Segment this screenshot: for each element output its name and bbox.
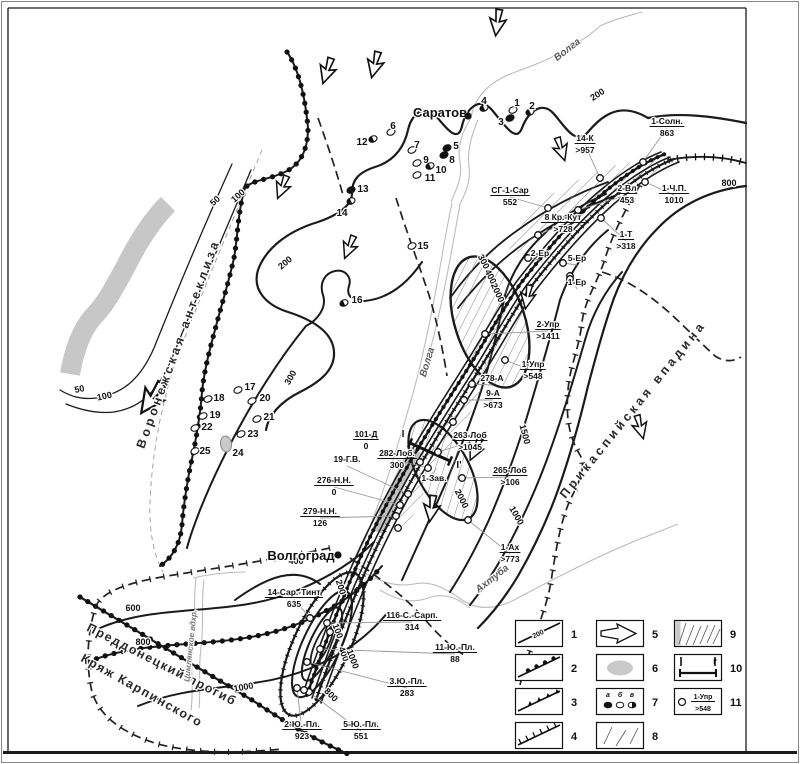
- well-circle: [535, 232, 542, 239]
- legend-number: 11: [730, 697, 742, 709]
- well-value: 300: [390, 460, 404, 470]
- city-name: Саратов: [413, 105, 467, 120]
- well-value: >957: [575, 145, 594, 155]
- point-number: 7: [414, 140, 420, 151]
- well-circle: [397, 502, 404, 509]
- city-name: Волгоград: [267, 548, 335, 563]
- well-name: 14-К: [576, 133, 594, 143]
- well-value: >106: [500, 477, 519, 487]
- well-value: >318: [616, 241, 635, 251]
- legend-number: 8: [652, 731, 658, 743]
- well-name: 279-Н.Н.: [303, 506, 337, 516]
- well-value: >1045: [458, 442, 482, 452]
- well-name: 11-Ю.-Пл.: [435, 642, 475, 652]
- well-circle: [395, 525, 402, 532]
- well-name: 1-Т: [620, 229, 634, 239]
- well-circle: [642, 179, 649, 186]
- well-value: >673: [483, 400, 502, 410]
- well-name: 2-Ю.-Пл.: [284, 719, 319, 729]
- dot-icon: [616, 702, 624, 708]
- well-name: 3.Ю.-Пл.: [390, 676, 425, 686]
- well-circle: [327, 629, 334, 636]
- point-number: 8: [449, 155, 455, 166]
- well-name: 263-Лоб: [453, 430, 486, 440]
- point-number: 21: [263, 412, 275, 423]
- well-name: 2-Упр: [537, 319, 560, 329]
- gray-area-icon: [607, 661, 633, 676]
- point-number: 4: [481, 96, 487, 107]
- well-value: >728: [553, 224, 572, 234]
- well-value: 314: [405, 622, 419, 632]
- well-value: 0: [364, 441, 369, 451]
- dot-type-label: б: [618, 691, 623, 699]
- well-circle: [301, 687, 308, 694]
- well-value: 0: [332, 487, 337, 497]
- well-circle: [597, 175, 604, 182]
- dot-type-label: а: [606, 692, 610, 699]
- section-start-label: I: [402, 429, 405, 440]
- point-number: 19: [209, 410, 221, 421]
- point-number: 14: [336, 208, 348, 219]
- well-circle: [435, 449, 442, 456]
- legend-number: 6: [652, 663, 658, 675]
- city-dot: [334, 551, 341, 558]
- well-circle: [405, 491, 412, 498]
- well-circle: [469, 381, 476, 388]
- well-name: 1-Солн.: [651, 116, 683, 126]
- well-value: 635: [287, 599, 301, 609]
- point-number: 23: [247, 429, 259, 440]
- well-value: 551: [354, 731, 368, 741]
- well-name: 2-Ер: [531, 248, 549, 258]
- well-circle: [598, 215, 605, 222]
- legend-number: 1: [571, 629, 577, 641]
- well-name: 2-Вл: [617, 183, 636, 193]
- well-circle: [294, 685, 301, 692]
- contour-value: 800: [135, 637, 150, 647]
- well-name: 265-Лоб: [493, 465, 526, 475]
- city-dot: [464, 112, 471, 119]
- legend-symbol-box: [597, 723, 644, 749]
- point-number: 12: [356, 137, 368, 148]
- point-number: 3: [498, 117, 504, 128]
- legend-number: 4: [571, 731, 578, 743]
- legend-number: 3: [571, 697, 577, 709]
- well-circle: [324, 620, 331, 627]
- point-number: 6: [390, 121, 396, 132]
- well-circle: [502, 357, 509, 364]
- point-number: 5: [453, 141, 459, 152]
- well-circle: [459, 475, 466, 482]
- well-circle: [317, 646, 324, 653]
- well-name: 1-Ч.П.: [662, 183, 686, 193]
- well-value: 283: [400, 688, 414, 698]
- well-circle: [640, 159, 647, 166]
- point-number: 13: [357, 184, 369, 195]
- well-name: 1-Зав.: [421, 473, 446, 483]
- well-value: 863: [660, 128, 674, 138]
- legend-number: 9: [730, 629, 736, 641]
- bead-icon: [551, 656, 555, 660]
- well-circle: [425, 465, 432, 472]
- well-name: 282-Лоб.: [379, 448, 415, 458]
- map-canvas: Воронежская антеклизаПрикаспийская впади…: [0, 0, 800, 764]
- well-circle: [545, 205, 552, 212]
- legend-number: 10: [730, 663, 742, 675]
- legend-number: 2: [571, 663, 577, 675]
- legend-well-value: >548: [695, 706, 711, 713]
- legend-number: 5: [652, 629, 658, 641]
- point-number: 15: [417, 241, 429, 252]
- well-value: >548: [523, 371, 542, 381]
- dot-icon: [604, 702, 612, 708]
- well-name: 278-А: [480, 373, 503, 383]
- well-name: 8 Кр.-Кут: [545, 212, 582, 222]
- bead-icon: [526, 668, 530, 672]
- well-circle: [482, 331, 489, 338]
- well-circle-icon: [679, 699, 686, 706]
- map-page: Воронежская антеклизаПрикаспийская впади…: [0, 0, 800, 764]
- well-circle: [393, 513, 400, 520]
- well-name: 1-Ер: [568, 277, 586, 287]
- contour-value: 800: [721, 178, 736, 188]
- well-name: СГ-1-Сар: [491, 185, 529, 195]
- well-circle: [417, 459, 424, 466]
- well-value: 923: [295, 731, 309, 741]
- point-number: 1: [514, 98, 520, 109]
- well-name: 276-Н.Н.: [317, 475, 351, 485]
- point-number: 11: [425, 173, 436, 184]
- point-number: 25: [199, 446, 211, 457]
- contour-value: 50: [73, 383, 85, 395]
- well-name: 5-Ер: [568, 253, 586, 263]
- well-value: >773: [500, 554, 519, 564]
- point-number: 16: [351, 295, 363, 306]
- point-number: 22: [201, 422, 213, 433]
- well-value: 126: [313, 518, 327, 528]
- legend-well-name: 1-Упр: [694, 694, 713, 701]
- well-circle: [307, 615, 314, 622]
- well-value: 453: [620, 195, 634, 205]
- point-number: 10: [435, 165, 447, 176]
- point-number: 2: [529, 101, 535, 112]
- well-name: 9-А: [486, 388, 500, 398]
- well-circle: [304, 659, 311, 666]
- point-number: 18: [213, 393, 225, 404]
- well-value: 1010: [665, 195, 684, 205]
- bead-icon: [534, 664, 538, 668]
- well-value: >1411: [536, 331, 560, 341]
- well-circle: [450, 419, 457, 426]
- well-circle: [461, 397, 468, 404]
- well-value: 552: [503, 197, 517, 207]
- well-name: 116-С.-Сарп.: [386, 610, 438, 620]
- well-circle: [560, 260, 567, 267]
- well-value: 88: [450, 654, 460, 664]
- point-number: 17: [244, 382, 256, 393]
- well-name: 14-Сар.-Тинт: [267, 587, 320, 597]
- contour-value: 600: [125, 603, 140, 613]
- well-circle: [465, 517, 472, 524]
- well-name: 19-Г.В.: [334, 454, 361, 464]
- section-end-label: I': [456, 460, 461, 471]
- well-name: 5-Ю.-Пл.: [343, 719, 378, 729]
- well-name: 1-Ах: [501, 542, 520, 552]
- well-name: 1-Упр: [522, 359, 545, 369]
- point-number: 20: [259, 393, 271, 404]
- point-number: 24: [232, 448, 244, 459]
- legend-number: 7: [652, 697, 658, 709]
- well-name: 101-Д: [354, 429, 377, 439]
- bead-icon: [543, 660, 547, 664]
